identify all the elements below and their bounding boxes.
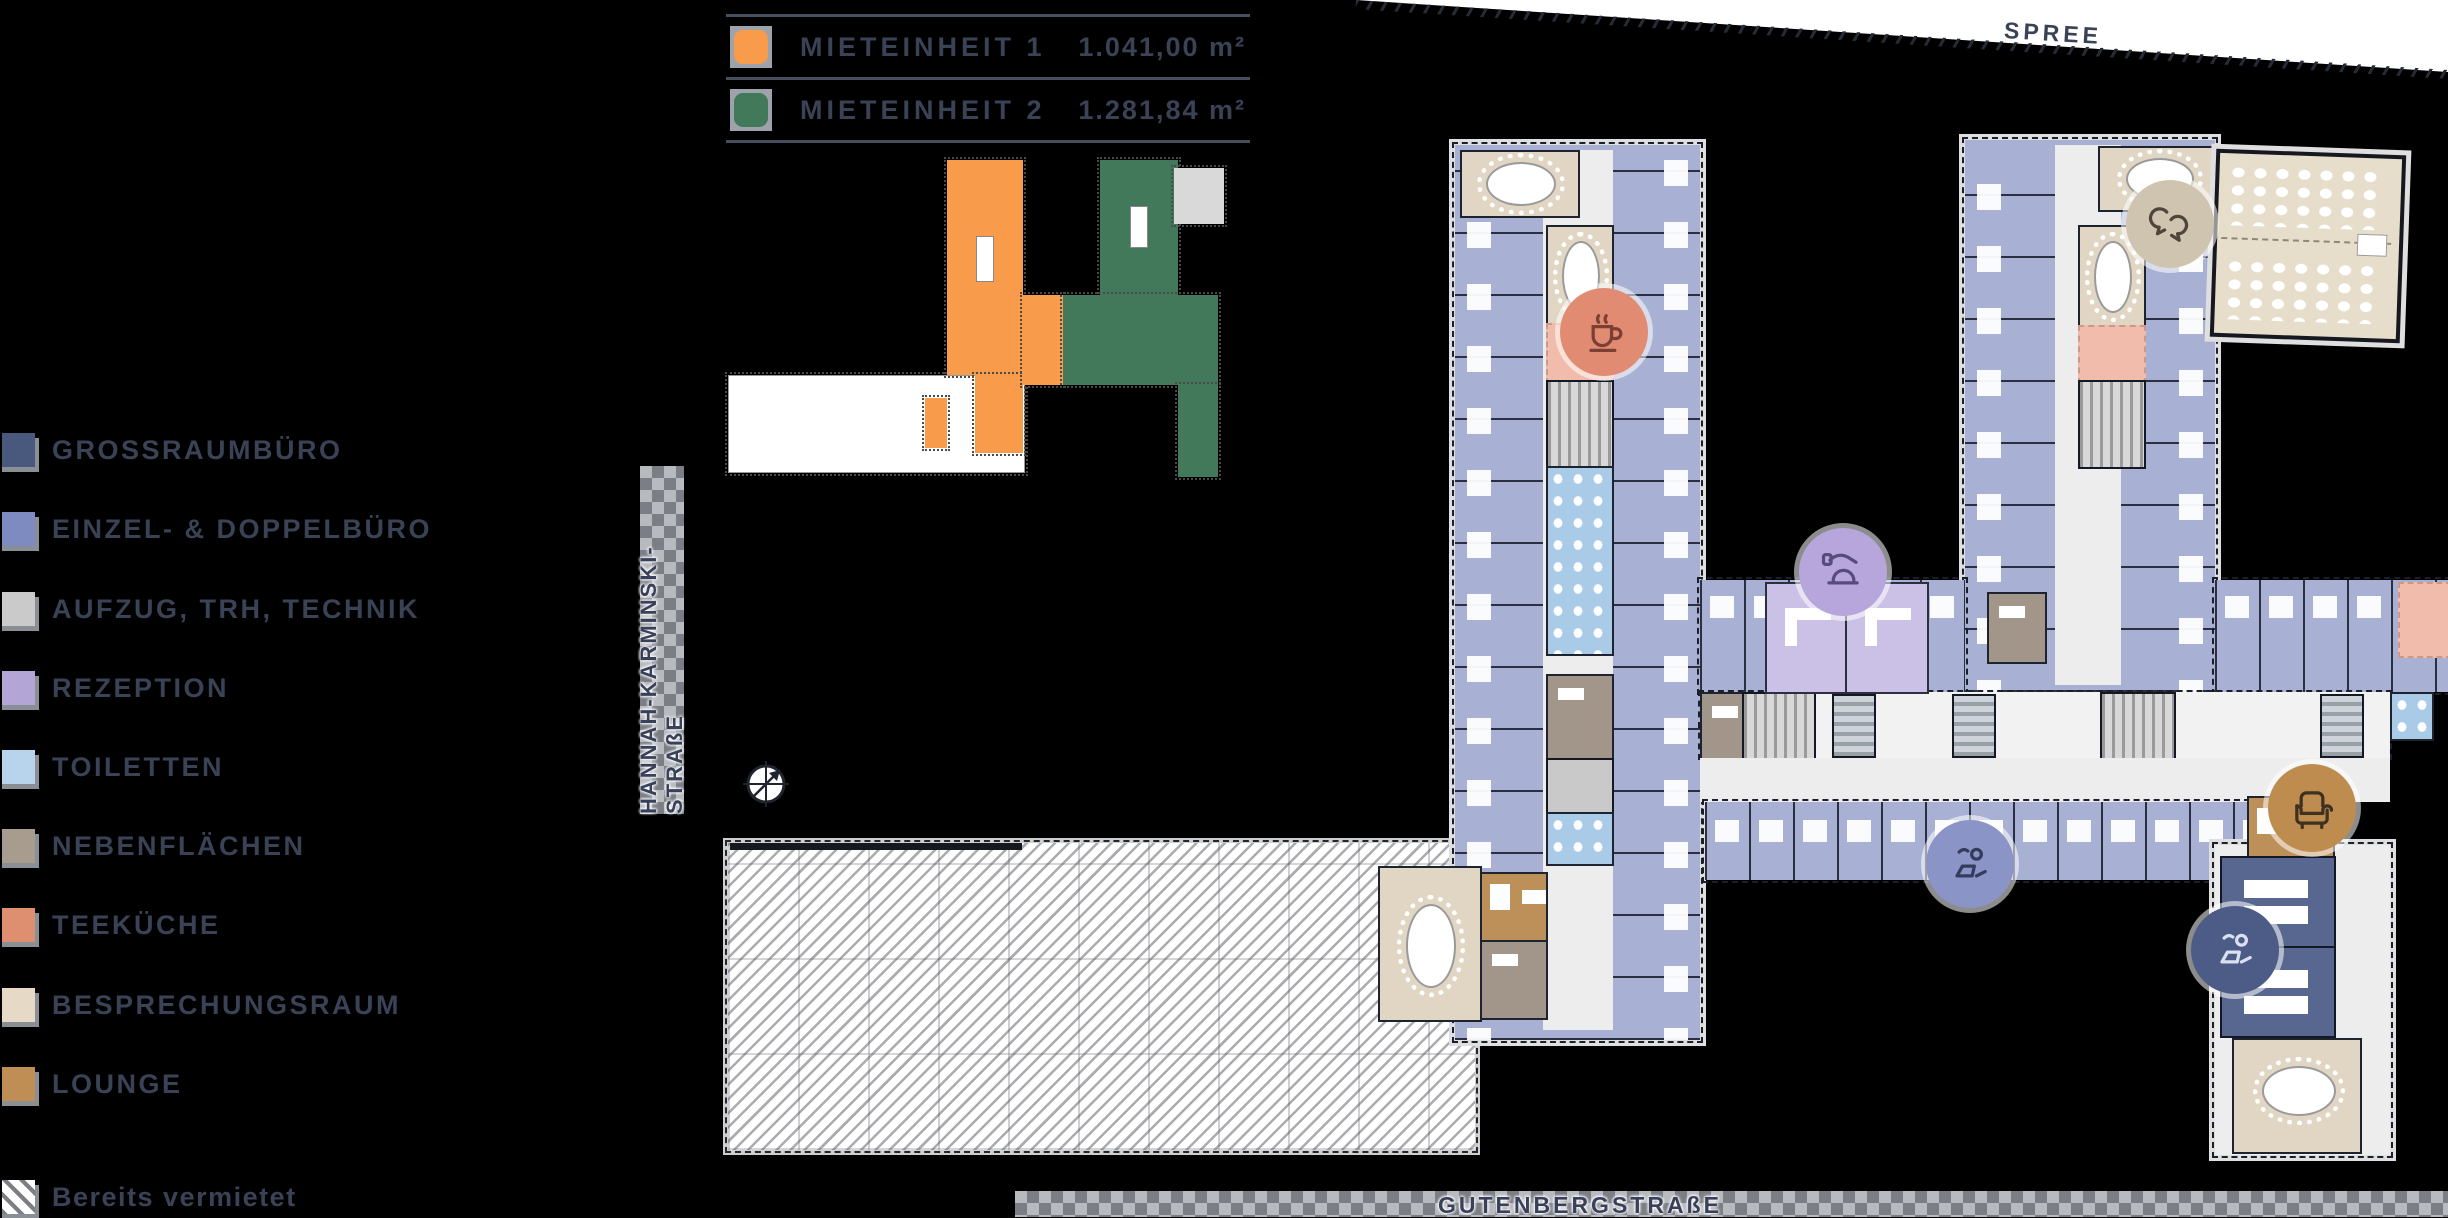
meeting-table xyxy=(1406,904,1456,988)
nebenflaechen-room xyxy=(1987,592,2047,664)
grossraum-badge xyxy=(1926,820,2014,908)
stair-core xyxy=(1546,380,1614,470)
legend-item-aufzug-trh-technik: AUFZUG, TRH, TECHNIK xyxy=(2,592,420,626)
besprechungsraum xyxy=(2232,1038,2362,1154)
meeting-table xyxy=(2094,241,2132,313)
toiletten-room xyxy=(2390,692,2434,741)
street-gutenberg xyxy=(1015,1191,2448,1217)
keyplan-annex xyxy=(1174,168,1224,224)
legend-label: EINZEL- & DOPPELBÜRO xyxy=(52,514,432,545)
teekueche-swatch xyxy=(2,908,35,942)
workstation-person-icon xyxy=(2209,924,2261,976)
coffee-cup-icon xyxy=(1578,306,1630,358)
elevator-bank xyxy=(1832,694,1876,758)
floorplan-page: SPREE MIETEINHEIT 1 1.041,00 m² MIETEINH… xyxy=(0,0,2448,1218)
rented-wing-top-wall xyxy=(730,843,1022,850)
mieteinheit1-area: 1.041,00 m² xyxy=(1078,32,1246,63)
street-hannah-karminski: HANNAH-KARMINSKI-STRAßE xyxy=(640,466,684,814)
legend-item-besprechungsraum: BESPRECHUNGSRAUM xyxy=(2,988,401,1022)
toiletten-room xyxy=(1546,466,1614,656)
legend-item-rezeption: REZEPTION xyxy=(2,671,229,705)
elevator-bank xyxy=(1952,694,1996,758)
meeting-table xyxy=(2262,1066,2336,1116)
workstation-person-icon xyxy=(1944,838,1996,890)
toiletten-room xyxy=(1546,812,1614,866)
legend-label: TEEKÜCHE xyxy=(52,910,221,941)
conference-room xyxy=(1460,150,1580,218)
legend-item-toiletten: TOILETTEN xyxy=(2,750,224,784)
stair-core xyxy=(2078,380,2146,469)
rezeption-badge xyxy=(1799,528,1887,616)
mieteinheit2-label: MIETEINHEIT 2 xyxy=(800,95,1078,126)
mieteinheit1-swatch-tile xyxy=(730,26,772,68)
key-legend-row: MIETEINHEIT 1 1.041,00 m² xyxy=(726,14,1250,77)
stair-core xyxy=(2100,692,2176,762)
armchair-icon xyxy=(2286,782,2338,834)
toiletten-swatch xyxy=(2,750,35,784)
legend-item-bereits-vermietet: Bereits vermietet xyxy=(2,1180,297,1214)
event-hall-annex xyxy=(2210,149,2406,344)
keyplan-mieteinheit2-mid xyxy=(1063,295,1218,385)
key-legend: MIETEINHEIT 1 1.041,00 m² MIETEINHEIT 2 … xyxy=(726,14,1250,143)
legend-label: TOILETTEN xyxy=(52,752,224,783)
legend-label: GROSSRAUMBÜRO xyxy=(52,435,343,466)
rented-wing xyxy=(728,843,1475,1150)
rezeption-swatch xyxy=(2,671,35,705)
einzel-doppelbuero-swatch xyxy=(2,512,35,546)
seating-rows xyxy=(2222,257,2374,324)
besprechungsraum-swatch xyxy=(2,988,35,1022)
key-legend-row: MIETEINHEIT 2 1.281,84 m² xyxy=(726,77,1250,143)
legend-item-teekueche: TEEKÜCHE xyxy=(2,908,221,942)
elevator-bank xyxy=(2320,694,2364,758)
keyplan-mieteinheit1-arm xyxy=(1023,295,1063,385)
core-strip xyxy=(1700,692,2390,758)
meeting-table xyxy=(1486,162,1556,206)
stage-desk xyxy=(2357,234,2388,257)
chat-bubbles-icon xyxy=(2144,198,2196,250)
seating-rows xyxy=(2226,163,2378,230)
legend-item-lounge: LOUNGE xyxy=(2,1067,183,1101)
keyplan-mieteinheit1-flare xyxy=(925,398,947,448)
key-plan-minimap xyxy=(728,146,1228,482)
legend-label: NEBENFLÄCHEN xyxy=(52,831,306,862)
mieteinheit2-area: 1.281,84 m² xyxy=(1078,95,1246,126)
nebenflaechen-swatch xyxy=(2,829,35,863)
conference-room xyxy=(1378,866,1482,1022)
grossraumbuero-swatch xyxy=(2,433,35,467)
legend-item-nebenflaechen: NEBENFLÄCHEN xyxy=(2,829,306,863)
keyplan-mieteinheit2-leg xyxy=(1178,385,1218,477)
nebenflaechen-room xyxy=(1480,940,1548,1020)
keyplan-core1 xyxy=(976,236,994,282)
mieteinheit1-label: MIETEINHEIT 1 xyxy=(800,32,1078,63)
mieteinheit1-swatch xyxy=(734,30,768,64)
lounge-badge xyxy=(2268,764,2356,852)
legend-label: BESPRECHUNGSRAUM xyxy=(52,990,401,1021)
technik-room xyxy=(1546,758,1614,816)
reception-bell-icon xyxy=(1817,546,1869,598)
legend-label: REZEPTION xyxy=(52,673,229,704)
stair-core xyxy=(1742,692,1816,762)
lounge-room xyxy=(1480,872,1548,942)
lounge-swatch xyxy=(2,1067,35,1101)
north-arrow-icon xyxy=(740,758,792,810)
bereits-vermietet-swatch xyxy=(2,1180,35,1214)
mieteinheit2-swatch-tile xyxy=(730,89,772,131)
keyplan-mieteinheit1-lower xyxy=(975,375,1023,453)
legend-label: Bereits vermietet xyxy=(52,1182,297,1213)
grossraum-badge xyxy=(2191,906,2279,994)
teekueche-badge xyxy=(1560,288,1648,376)
teekueche-room xyxy=(2078,325,2146,384)
aufzug-trh-technik-swatch xyxy=(2,592,35,626)
nebenflaechen-room xyxy=(1700,692,1746,762)
teekueche-room xyxy=(2398,582,2448,658)
nebenflaechen-room xyxy=(1546,674,1614,762)
legend-item-einzel-doppelbuero: EINZEL- & DOPPELBÜRO xyxy=(2,512,432,546)
event-area-badge xyxy=(2126,180,2214,268)
keyplan-core2 xyxy=(1130,206,1148,248)
street-gutenberg-label: GUTENBERGSTRAßE xyxy=(1438,1192,1722,1218)
legend-label: AUFZUG, TRH, TECHNIK xyxy=(52,594,420,625)
street-hannah-karminski-label: HANNAH-KARMINSKI-STRAßE xyxy=(636,466,688,814)
legend-label: LOUNGE xyxy=(52,1069,183,1100)
mieteinheit2-swatch xyxy=(734,93,768,127)
legend-item-grossraumbuero: GROSSRAUMBÜRO xyxy=(2,433,343,467)
